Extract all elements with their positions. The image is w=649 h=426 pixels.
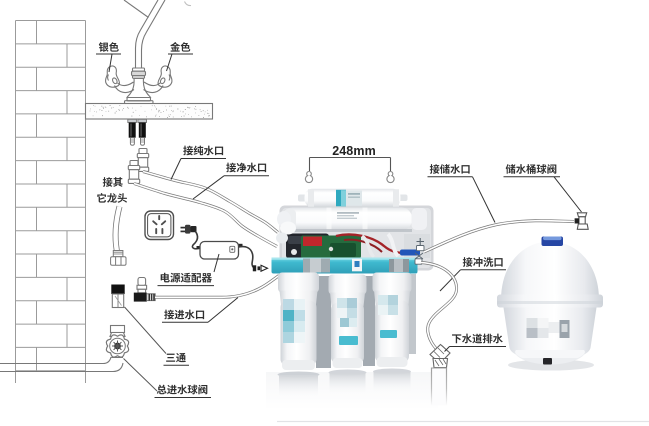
svg-text:248mm: 248mm [332, 144, 376, 158]
